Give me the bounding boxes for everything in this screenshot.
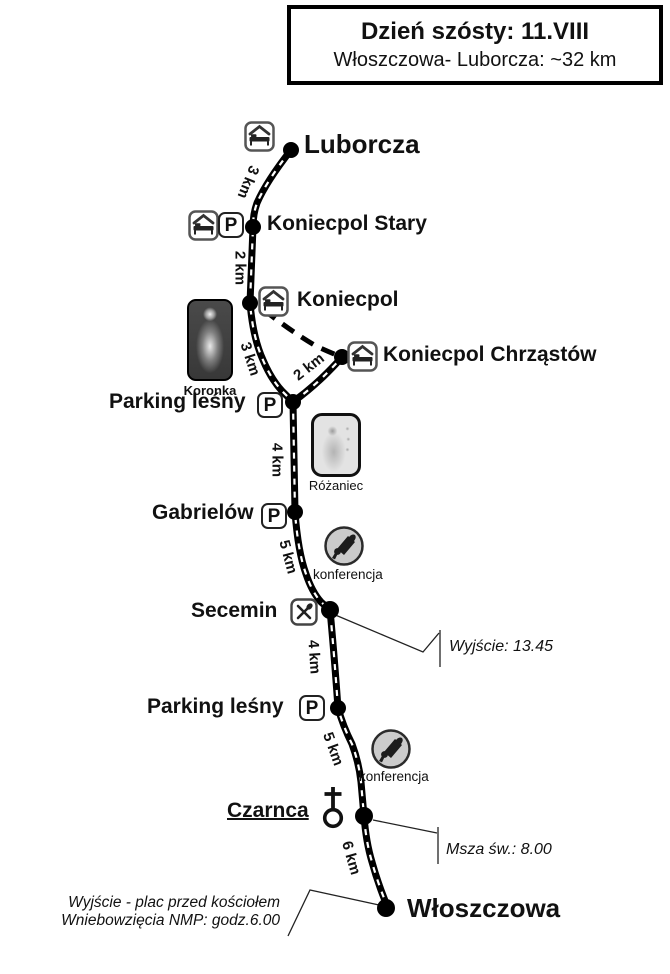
stop-label-koniecpol: Koniecpol [297,289,399,310]
stop-label-luborcza: Luborcza [304,131,420,157]
annotation-secemin-departure: Wyjście: 13.45 [449,638,553,656]
stop-label-wloszczowa: Włoszczowa [407,895,560,921]
food-icon-secemin [290,598,318,626]
title-box: Dzień szósty: 11.VIII Włoszczowa- Luborc… [287,5,663,85]
church-icon-czarnca [318,784,348,830]
parking-icon-gabrielow: P [261,503,287,529]
annotation-start-note-line1: Wyjście - plac przed kościołem [55,894,280,912]
accommodation-icon-koniecpol-stary [188,210,219,241]
node-wloszczowa [377,899,395,917]
konferencja-caption-1: konferencja [313,568,383,582]
accommodation-icon-koniecpol [258,286,289,317]
stop-label-koniecpol-chrzastow: Koniecpol Chrząstów [383,344,597,365]
stop-label-parking-lesny-1: Parking leśny [109,391,246,412]
annotation-start-note: Wyjście - plac przed kościołem Wniebowzi… [55,894,280,930]
konferencja-caption-2: konferencja [359,770,429,784]
megaphone-icon-konferencja-1 [323,525,365,567]
distance-label-parking-lesny-gabrielow: 4 km [270,443,285,477]
distance-label-secemin-parking-lesny-2: 4 km [305,639,322,674]
route-map: Dzień szósty: 11.VIII Włoszczowa- Luborc… [0,0,670,974]
day-title: Dzień szósty: 11.VIII [291,18,659,46]
stop-label-parking-lesny-2: Parking leśny [147,696,284,717]
megaphone-icon-konferencja-2 [370,728,412,770]
node-koniecpol [242,295,258,311]
node-parking-lesny-2 [330,700,346,716]
koronka-image [187,299,233,381]
distance-label-koniecpol-stary-koniecpol: 2 km [233,251,248,285]
route-dashed-alternative [264,310,342,357]
annotation-start-note-line2: Wniebowzięcia NMP: godz.6.00 [55,912,280,930]
node-secemin [321,601,339,619]
annotation-czarnca-mass: Msza św.: 8.00 [446,841,552,859]
node-parking-lesny-1 [285,394,301,410]
node-czarnca [355,807,373,825]
parking-icon-parking-lesny-2: P [299,695,325,721]
accommodation-icon-luborcza [244,121,275,152]
parking-icon-koniecpol-stary: P [218,212,244,238]
parking-icon-parking-lesny-1: P [257,392,283,418]
node-gabrielow [287,504,303,520]
stop-label-koniecpol-stary: Koniecpol Stary [267,213,427,234]
node-luborcza [283,142,299,158]
accommodation-icon-chrzastow [347,341,378,372]
stop-label-czarnca: Czarnca [227,800,309,821]
stop-label-gabrielow: Gabrielów [152,502,254,523]
callout-line-secemin [333,614,439,652]
rozaniec-caption: Różaniec [309,479,363,492]
rozaniec-image [311,413,361,477]
node-koniecpol-stary [245,219,261,235]
callout-line-czarnca [373,820,437,833]
callout-line-wloszczowa [288,890,379,936]
day-route-summary: Włoszczowa- Luborcza: ~32 km [291,49,659,72]
stop-label-secemin: Secemin [191,600,277,621]
